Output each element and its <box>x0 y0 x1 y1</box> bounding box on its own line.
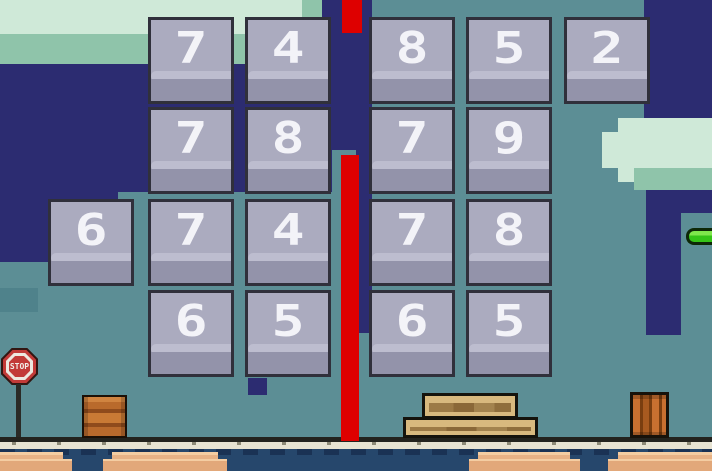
number-block[interactable]: 7 <box>369 107 455 194</box>
block-lower-face <box>248 261 328 283</box>
number-block[interactable]: 6 <box>369 290 455 377</box>
block-lower-face <box>567 79 647 101</box>
red-hazard-bar-top <box>342 0 362 33</box>
block-number: 2 <box>557 20 657 75</box>
block-number: 7 <box>362 110 462 165</box>
block-lower-face <box>469 169 549 191</box>
block-number: 8 <box>238 110 338 165</box>
block-lower-face <box>469 352 549 374</box>
block-lower-face <box>372 169 452 191</box>
number-block[interactable]: 8 <box>369 17 455 104</box>
red-hazard-bar <box>341 155 359 441</box>
block-number: 4 <box>238 20 338 75</box>
block-lower-face <box>248 79 328 101</box>
block-lower-face <box>151 79 231 101</box>
block-number: 4 <box>238 202 338 257</box>
block-lower-face <box>469 261 549 283</box>
block-number: 6 <box>141 293 241 348</box>
block-lower-face <box>372 79 452 101</box>
block-lower-face <box>248 169 328 191</box>
number-block[interactable]: 8 <box>245 107 331 194</box>
block-lower-face <box>51 261 131 283</box>
block-lower-face <box>151 261 231 283</box>
number-block[interactable]: 6 <box>148 290 234 377</box>
block-number: 8 <box>459 202 559 257</box>
block-number: 5 <box>459 20 559 75</box>
block-lower-face <box>469 79 549 101</box>
number-block[interactable]: 4 <box>245 17 331 104</box>
block-lower-face <box>151 352 231 374</box>
number-block[interactable]: 6 <box>48 199 134 286</box>
block-number: 6 <box>362 293 462 348</box>
number-block[interactable]: 5 <box>245 290 331 377</box>
number-block[interactable]: 5 <box>466 17 552 104</box>
number-block[interactable]: 8 <box>466 199 552 286</box>
game-stage: STOP 748527879674786565 <box>0 0 712 471</box>
number-block[interactable]: 7 <box>148 199 234 286</box>
number-block[interactable]: 9 <box>466 107 552 194</box>
number-block[interactable]: 7 <box>148 17 234 104</box>
block-number: 8 <box>362 20 462 75</box>
number-block[interactable]: 7 <box>148 107 234 194</box>
number-block[interactable]: 4 <box>245 199 331 286</box>
number-block[interactable]: 2 <box>564 17 650 104</box>
block-lower-face <box>151 169 231 191</box>
block-number: 5 <box>459 293 559 348</box>
block-number: 5 <box>238 293 338 348</box>
block-number: 7 <box>141 20 241 75</box>
block-number: 7 <box>141 110 241 165</box>
block-number: 6 <box>41 202 141 257</box>
block-number: 7 <box>362 202 462 257</box>
block-lower-face <box>248 352 328 374</box>
number-block[interactable]: 5 <box>466 290 552 377</box>
number-block[interactable]: 7 <box>369 199 455 286</box>
block-number: 7 <box>141 202 241 257</box>
block-number: 9 <box>459 110 559 165</box>
block-lower-face <box>372 352 452 374</box>
block-lower-face <box>372 261 452 283</box>
